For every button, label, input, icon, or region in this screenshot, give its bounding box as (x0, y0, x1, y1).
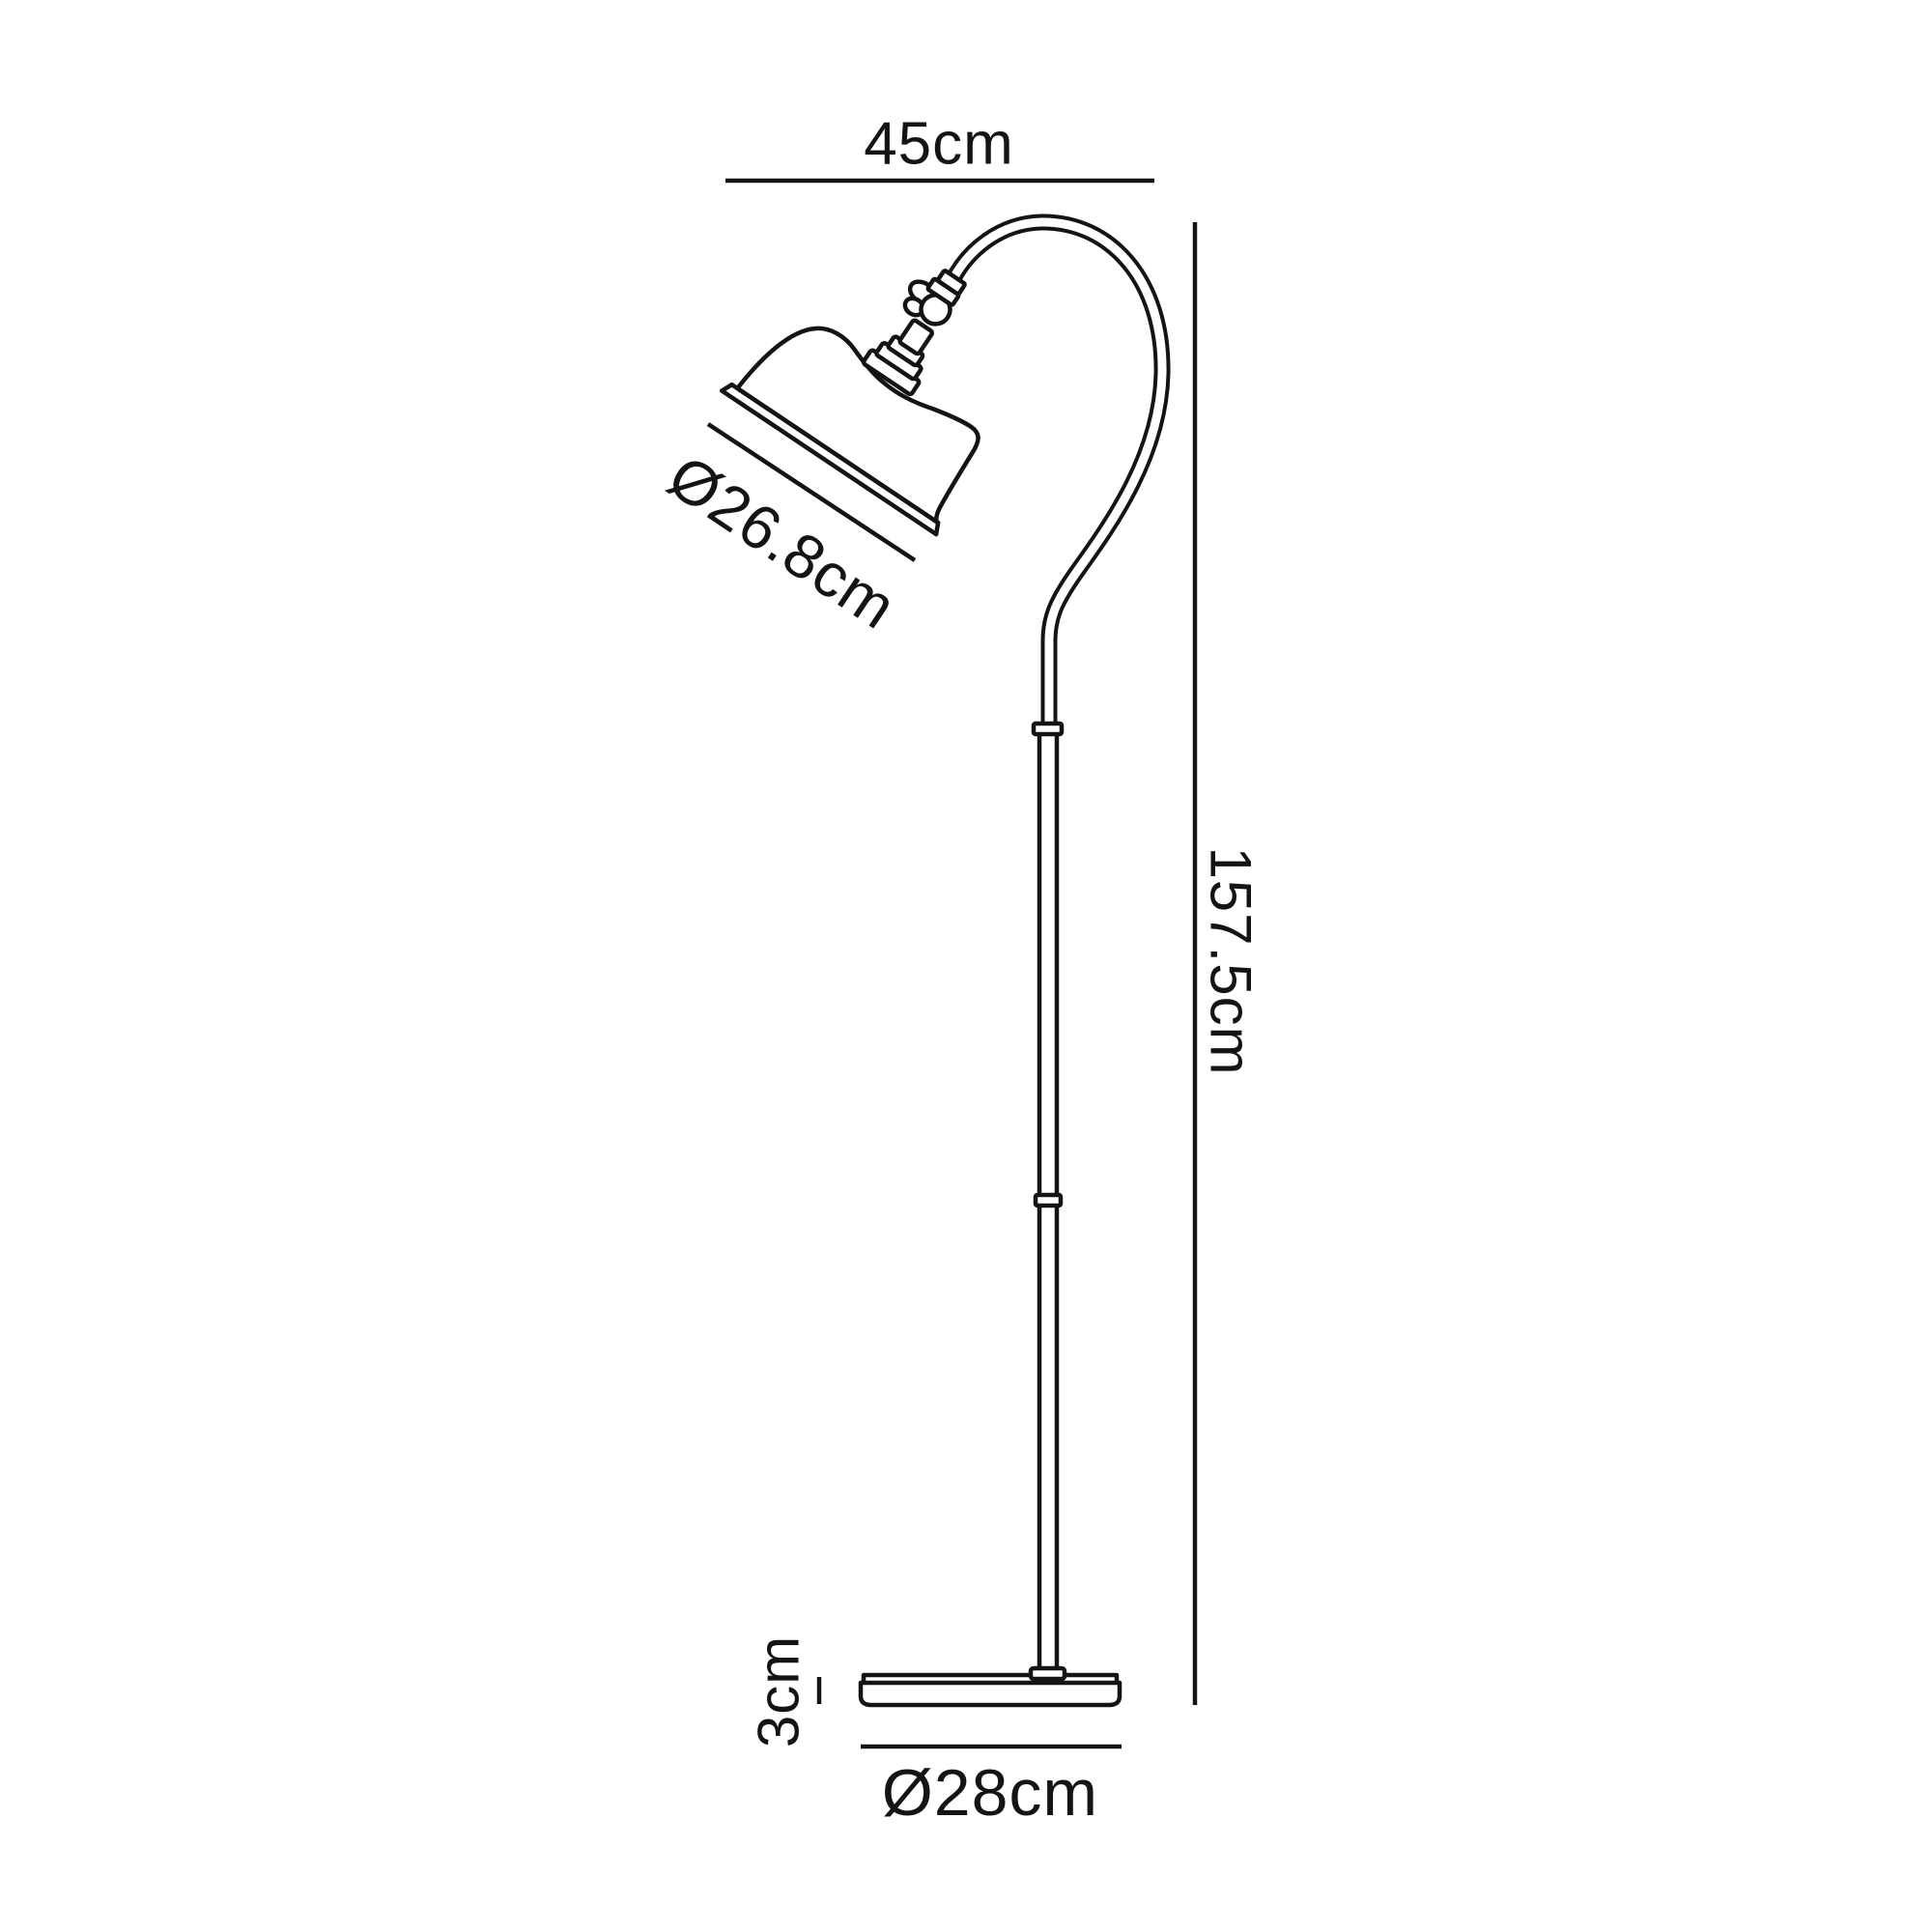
floor-lamp-dimension-diagram: 45cm 157.5cm Ø26.8cm 3cm Ø28cm (0, 0, 1932, 1932)
stem-base-flange (1031, 1668, 1065, 1679)
base-body (861, 1683, 1120, 1705)
stem-top-collar (1034, 724, 1062, 734)
diagram-canvas: 45cm 157.5cm Ø26.8cm 3cm Ø28cm (0, 0, 1932, 1932)
overall-width-label: 45cm (864, 111, 1014, 178)
lamp-drawing (722, 205, 1162, 1705)
dimension-labels: 45cm 157.5cm Ø26.8cm 3cm Ø28cm (656, 111, 1263, 1831)
gooseneck-arm-outline (952, 222, 1162, 726)
base-height-label: 3cm (747, 1635, 811, 1747)
overall-height-label: 157.5cm (1199, 846, 1264, 1075)
base-diameter-label: Ø28cm (882, 1756, 1098, 1830)
stem-mid-collar (1036, 1195, 1061, 1206)
shade-assembly (722, 205, 1061, 534)
